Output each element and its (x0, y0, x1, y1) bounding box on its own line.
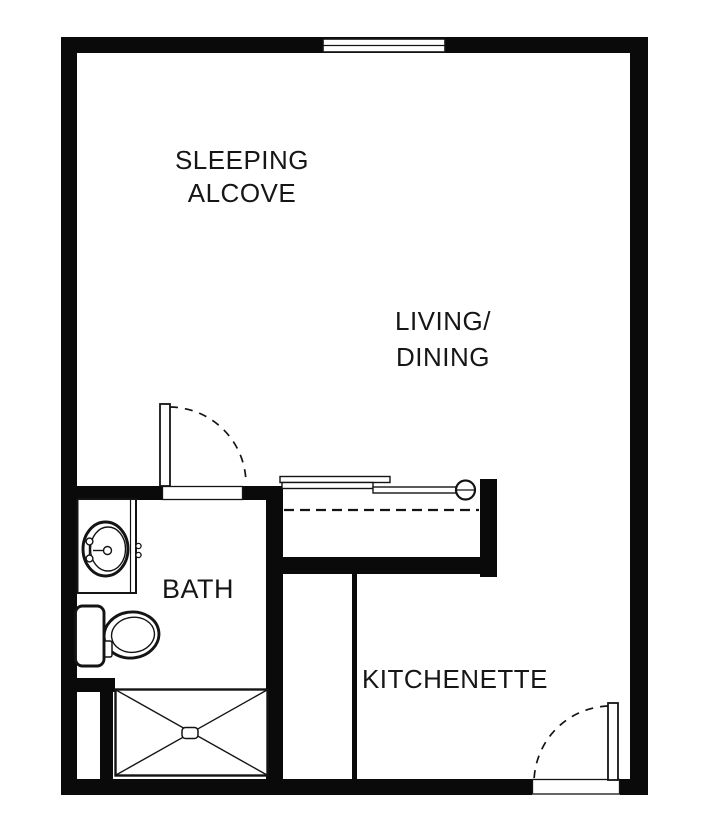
vanity-knob-top (136, 543, 141, 548)
room-label-bath: BATH (98, 576, 298, 603)
chase-niche-wall (100, 692, 113, 779)
right-wall (630, 37, 648, 795)
bath-door-leaf (160, 404, 170, 486)
shower-drain-icon (182, 728, 198, 739)
window-icon (323, 39, 445, 52)
room-label-line: DINING (333, 339, 553, 375)
room-label-line: ALCOVE (112, 177, 372, 210)
bottom-wall-right-segment (620, 779, 648, 795)
entry-door (533, 703, 620, 794)
bath-door (160, 404, 246, 500)
toilet-tank (76, 606, 105, 666)
sink-handle-top (86, 538, 93, 545)
floor-plan-drawing (0, 0, 706, 828)
kitchenette-counter (280, 477, 479, 511)
room-label-living-dining: LIVING/ DINING (333, 303, 553, 375)
room-label-line: BATH (98, 576, 298, 603)
shower (116, 690, 268, 776)
vanity-knob-bottom (136, 552, 141, 557)
room-label-sleeping-alcove: SLEEPING ALCOVE (112, 144, 372, 210)
bath-door-swing-arc (170, 407, 246, 483)
kitchen-nook-bottom-wall (278, 557, 497, 574)
counter-panel-3 (373, 487, 458, 493)
room-label-kitchenette: KITCHENETTE (345, 665, 565, 693)
entry-door-swing-arc (534, 706, 608, 782)
bottom-wall-left-segment (61, 779, 532, 795)
counter-panel-1 (280, 477, 390, 483)
room-label-line: LIVING/ (333, 303, 553, 339)
room-label-line: SLEEPING (112, 144, 372, 177)
bath-corner-stub-wall (61, 678, 115, 692)
entry-door-threshold (533, 780, 620, 795)
entry-door-leaf (608, 703, 618, 780)
bath-door-threshold (163, 487, 243, 500)
counter-panel-2 (282, 483, 373, 489)
sink-faucet-icon (104, 547, 112, 555)
floor-plan: SLEEPING ALCOVE LIVING/ DINING BATH KITC… (0, 0, 706, 828)
sink-handle-bottom (86, 555, 93, 562)
toilet (76, 606, 162, 666)
room-label-line: KITCHENETTE (345, 665, 565, 693)
bath-top-wall-left (77, 486, 162, 500)
